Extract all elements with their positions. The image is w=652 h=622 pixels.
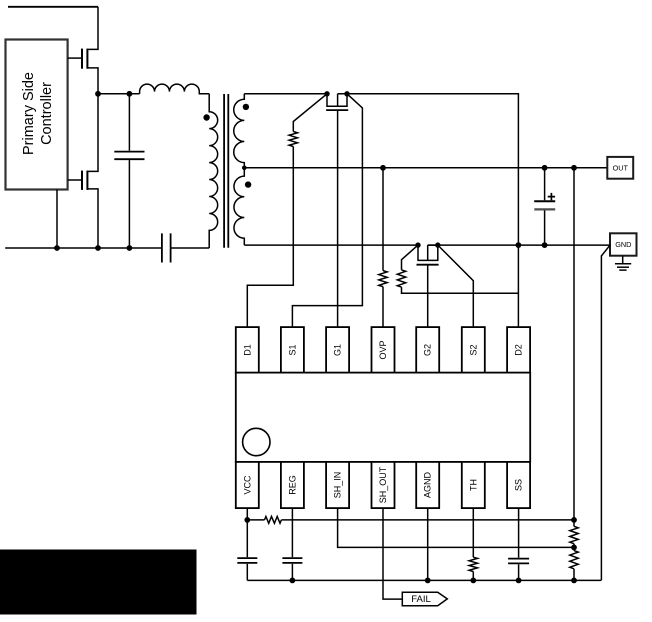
svg-text:S2: S2: [468, 344, 478, 355]
svg-text:FAIL: FAIL: [411, 594, 431, 605]
svg-text:SH_IN: SH_IN: [333, 472, 343, 499]
svg-text:OVP: OVP: [378, 340, 388, 359]
svg-text:REG: REG: [287, 475, 297, 495]
svg-text:VCC: VCC: [242, 475, 252, 495]
svg-text:Controller: Controller: [39, 82, 55, 145]
svg-text:G2: G2: [423, 344, 433, 356]
svg-text:AGND: AGND: [423, 472, 433, 499]
svg-text:D2: D2: [514, 344, 524, 356]
svg-text:OUT: OUT: [613, 163, 629, 172]
svg-text:TH: TH: [468, 479, 478, 491]
svg-text:GND: GND: [615, 240, 631, 249]
svg-text:D1: D1: [242, 344, 252, 356]
svg-text:G1: G1: [333, 344, 343, 356]
svg-text:SS: SS: [514, 479, 524, 491]
svg-text:SH_OUT: SH_OUT: [378, 466, 388, 503]
svg-text:S1: S1: [287, 344, 297, 355]
svg-text:Primary Side: Primary Side: [21, 72, 37, 155]
